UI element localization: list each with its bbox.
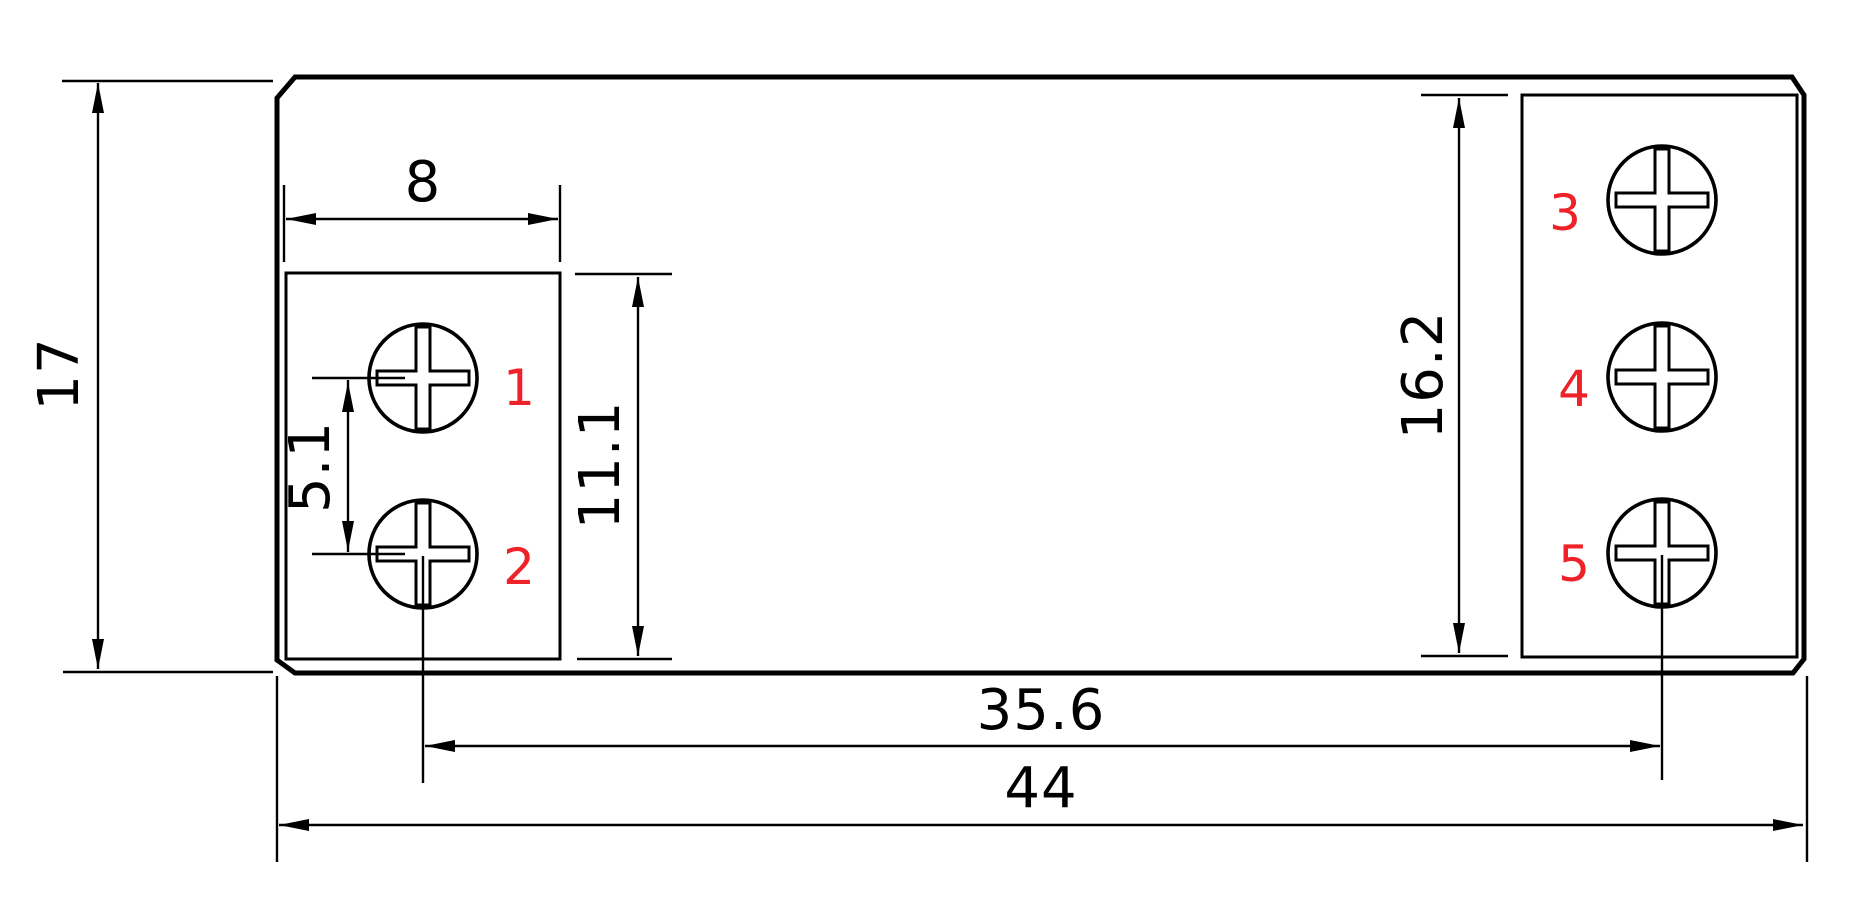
terminal-screw-4	[1608, 323, 1716, 431]
arrowhead-left-icon	[279, 819, 309, 831]
arrowhead-up-icon	[342, 382, 354, 412]
arrowhead-down-icon	[632, 626, 644, 656]
dim-11-1-label: 11.1	[568, 401, 633, 530]
terminal-5-label: 5	[1558, 535, 1590, 593]
arrowhead-right-icon	[1630, 740, 1660, 752]
dim-44-label: 44	[1004, 756, 1077, 821]
dim-16-2-label: 16.2	[1391, 311, 1456, 440]
terminal-1-label: 1	[503, 359, 535, 417]
dim-5-1-label: 5.1	[278, 421, 343, 513]
terminal-screw-3	[1608, 146, 1716, 254]
arrowhead-down-icon	[1453, 623, 1465, 653]
dim-17-label: 17	[27, 337, 92, 410]
dimension-height-overall: 17	[27, 81, 273, 672]
terminal-3-label: 3	[1549, 184, 1581, 242]
terminal-2-label: 2	[503, 538, 535, 596]
dimension-left-block-height: 11.1	[568, 274, 672, 659]
arrowhead-down-icon	[92, 639, 104, 669]
arrowhead-left-icon	[286, 213, 316, 225]
drawing-page: 1 2 3 4 5 17 8	[0, 0, 1866, 901]
arrowhead-right-icon	[1773, 819, 1803, 831]
dimension-left-block-width: 8	[284, 150, 560, 262]
arrowhead-up-icon	[632, 277, 644, 307]
dim-8-label: 8	[405, 150, 442, 215]
dimension-right-block-height: 16.2	[1391, 95, 1508, 656]
dimension-terminal-span: 35.6	[423, 555, 1662, 783]
arrowhead-right-icon	[528, 213, 558, 225]
dim-35-6-label: 35.6	[977, 678, 1106, 743]
arrowhead-down-icon	[342, 521, 354, 551]
technical-drawing: 1 2 3 4 5 17 8	[0, 0, 1866, 901]
terminal-4-label: 4	[1558, 360, 1590, 418]
arrowhead-up-icon	[1453, 98, 1465, 128]
arrowhead-up-icon	[92, 83, 104, 113]
arrowhead-left-icon	[425, 740, 455, 752]
